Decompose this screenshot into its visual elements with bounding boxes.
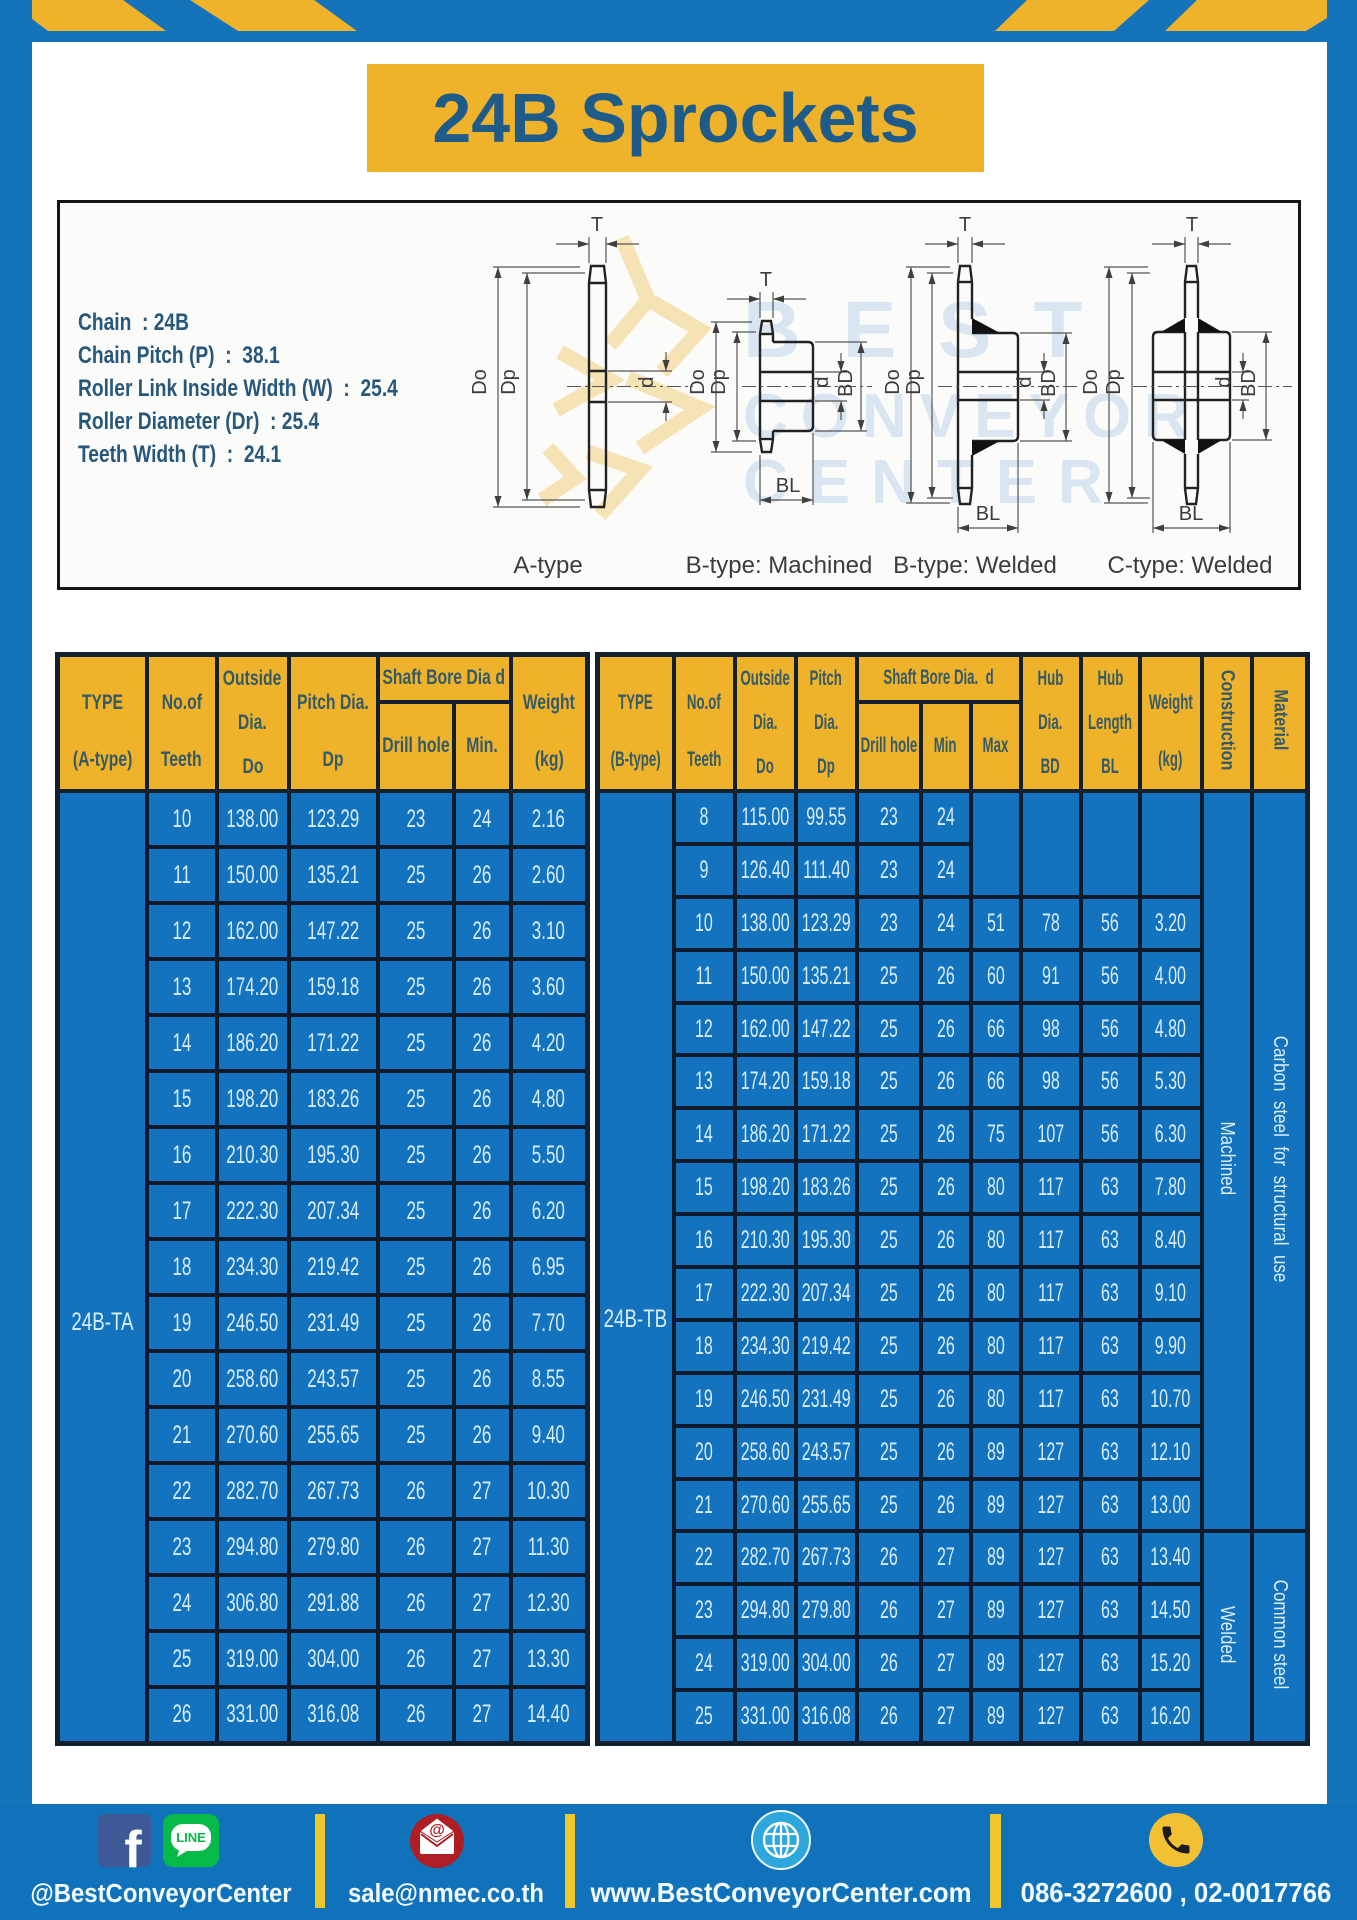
- svg-text:BEST: BEST: [743, 285, 1124, 374]
- svg-text:T: T: [591, 214, 603, 236]
- svg-text:f: f: [124, 1821, 142, 1879]
- svg-text:@: @: [429, 1822, 445, 1839]
- svg-text:C-type: Welded: C-type: Welded: [1108, 552, 1273, 579]
- svg-text:BD: BD: [1038, 369, 1060, 397]
- svg-text:sale@nmec.co.th: sale@nmec.co.th: [348, 1879, 544, 1908]
- svg-text:www.BestConveyorCenter.com: www.BestConveyorCenter.com: [589, 1877, 971, 1908]
- svg-text:d: d: [636, 376, 658, 387]
- svg-text:A-type: A-type: [513, 552, 582, 579]
- svg-text:T: T: [959, 214, 971, 236]
- svg-text:086-3272600 , 02-0017766: 086-3272600 , 02-0017766: [1021, 1877, 1332, 1908]
- svg-text:Dp: Dp: [498, 369, 520, 395]
- svg-text:Dp: Dp: [1103, 369, 1125, 395]
- svg-text:d: d: [1213, 376, 1235, 387]
- svg-text:BL: BL: [776, 475, 800, 497]
- svg-text:T: T: [760, 269, 772, 291]
- svg-text:BD: BD: [1238, 369, 1260, 397]
- svg-text:B-type: Welded: B-type: Welded: [893, 552, 1057, 579]
- svg-text:Dp: Dp: [903, 369, 925, 395]
- svg-text:@BestConveyorCenter: @BestConveyorCenter: [30, 1879, 291, 1908]
- svg-text:d: d: [811, 376, 833, 387]
- svg-text:Do: Do: [1080, 369, 1102, 395]
- svg-text:d: d: [1014, 376, 1036, 387]
- svg-text:B-type: Machined: B-type: Machined: [686, 552, 873, 579]
- svg-text:T: T: [1186, 214, 1198, 236]
- svg-text:Do: Do: [687, 369, 709, 395]
- svg-text:Dp: Dp: [708, 369, 730, 395]
- svg-text:BL: BL: [976, 503, 1000, 525]
- svg-text:BD: BD: [835, 369, 857, 397]
- svg-text:LINE: LINE: [176, 1830, 206, 1845]
- svg-text:BL: BL: [1179, 503, 1203, 525]
- svg-text:Do: Do: [882, 369, 904, 395]
